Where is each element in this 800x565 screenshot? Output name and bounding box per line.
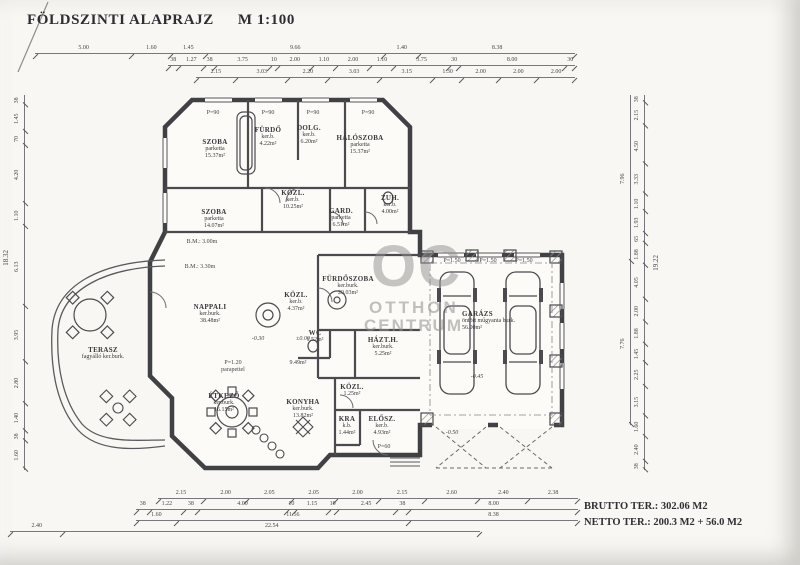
dimension-value: 2.15 bbox=[196, 68, 236, 77]
dimension-value: 38 bbox=[14, 431, 24, 441]
room-label-konyha: KONYHA ker.burk. 13.82m² bbox=[286, 398, 319, 420]
dimension-value: 3.33 bbox=[634, 164, 644, 194]
garage-door-opening bbox=[498, 421, 554, 429]
terrace-seating bbox=[88, 378, 147, 437]
note-parapet: P=1.20 parapettel bbox=[221, 360, 245, 374]
dimension-value: 5.00 bbox=[35, 44, 132, 53]
garage-door-opening bbox=[432, 421, 488, 429]
dimension-chain-bottom-2: 381.22384.00101.15102.45388.00 bbox=[136, 500, 578, 510]
dimension-value: 10 bbox=[287, 500, 295, 509]
dimension-value: 8.00 bbox=[459, 56, 565, 65]
note-p150: P=1.50 bbox=[515, 258, 532, 265]
watermark-line1: OTTHON bbox=[369, 299, 459, 316]
dimension-value: 1.45 bbox=[14, 105, 24, 132]
dimension-value: 1.88 bbox=[634, 323, 644, 345]
level-marker: -0.30 bbox=[252, 336, 265, 343]
dimension-value: 2.00 bbox=[537, 68, 575, 77]
dimension-value: 4.05 bbox=[634, 265, 644, 300]
dimension-value: 2.40 bbox=[478, 489, 528, 498]
note-p150: P=1.50 bbox=[443, 258, 460, 265]
dimension-chain-left: 381.45704.201.106.133.952.801.40381.60 bbox=[14, 95, 25, 470]
dimension-value: 1.45 bbox=[634, 344, 644, 363]
dimension-value: 3.75 bbox=[394, 56, 449, 65]
dimension-value: 2.05 bbox=[247, 489, 291, 498]
dimension-value: 8.38 bbox=[419, 44, 575, 53]
dimension-value: 38 bbox=[14, 95, 24, 105]
dimension-value: 1.10 bbox=[370, 56, 394, 65]
dimension-value: 30 bbox=[565, 56, 575, 65]
dimension-value: 4.20 bbox=[14, 146, 24, 204]
dimension-value: 9.66 bbox=[206, 44, 384, 53]
room-label-szoba-2: SZOBA parketta 14.07m² bbox=[201, 208, 226, 230]
watermark-logo: OC bbox=[371, 238, 462, 296]
dimension-value: 2.15 bbox=[158, 489, 204, 498]
room-label-kozl-3: KÖZL. 1.25m² bbox=[340, 383, 363, 398]
dimension-value: 1.27 bbox=[179, 56, 205, 65]
dimension-value: 2.15 bbox=[634, 103, 644, 126]
dimension-value: 1.60 bbox=[132, 44, 170, 53]
dimension-value: 2.38 bbox=[528, 489, 578, 498]
note-bm-300: B.M.: 3.00m bbox=[187, 239, 218, 246]
dimension-value: 2.20 bbox=[288, 68, 329, 77]
note-p150: P=1.50 bbox=[479, 258, 496, 265]
dimension-value: 2.40 bbox=[10, 522, 63, 531]
dimension-chain-top-2: 381.27383.75102.001.102.001.103.75308.00… bbox=[168, 56, 575, 66]
title-text: FÖLDSZINTI ALAPRAJZ bbox=[27, 12, 214, 28]
dimension-value: 1.30 bbox=[433, 68, 461, 77]
dimension-value: 2.00 bbox=[462, 68, 500, 77]
room-label-szoba-1: SZOBA parketta 15.37m² bbox=[202, 138, 227, 160]
dimension-value: 1.15 bbox=[295, 500, 328, 509]
dimension-chain-right: 382.154.503.331.101.93651.884.052.001.88… bbox=[634, 95, 645, 470]
dimension-value: 2.00 bbox=[336, 489, 379, 498]
dimension-value: 1.60 bbox=[634, 417, 644, 437]
room-label-nappali: NAPPALI ker.burk. 38.48m² bbox=[194, 303, 227, 325]
dimension-value: 10 bbox=[329, 500, 337, 509]
dimension-value: 1.22 bbox=[150, 500, 185, 509]
room-label-dolg: DOLG. ker.b. 6.20m² bbox=[297, 124, 321, 146]
room-label-etkezo: ÉTKEZŐ ker.burk. 16.15m² bbox=[208, 392, 239, 414]
area-summary: BRUTTO TER.: 302.06 M2 NETTO TER.: 200.3… bbox=[584, 499, 742, 532]
dimension-value: 2.40 bbox=[634, 437, 644, 462]
dimension-value: 3.03 bbox=[328, 68, 380, 77]
dimension-value: 22.54 bbox=[63, 522, 480, 531]
dimension-value: 1.10 bbox=[312, 56, 336, 65]
room-label-hazth: HÁZT.H. ker.burk. 5.25m² bbox=[368, 336, 398, 358]
room-label-kozl-1: KÖZL. ker.b. 10.25m² bbox=[281, 189, 304, 211]
dimension-value: 2.45 bbox=[337, 500, 396, 509]
room-label-gard: GARD. parketta 6.51m² bbox=[329, 207, 353, 229]
level-marker: ±0.00 bbox=[296, 336, 310, 343]
dimension-value: 38 bbox=[168, 56, 179, 65]
dimension-value: 1.40 bbox=[14, 405, 24, 431]
dimension-value: 2.80 bbox=[14, 362, 24, 404]
dimension-value: 7.96 bbox=[620, 95, 630, 262]
dimension-value: 3.75 bbox=[215, 56, 270, 65]
dimension-value: 2.00 bbox=[499, 68, 537, 77]
dimension-value: 65 bbox=[634, 234, 644, 244]
room-label-furdo: FÜRDŐ ker.b. 4.22m² bbox=[255, 126, 281, 148]
dimension-value: 10 bbox=[270, 56, 277, 65]
dimension-value: 3.15 bbox=[380, 68, 433, 77]
dimension-value: 2.00 bbox=[634, 300, 644, 322]
dimension-value: 1.88 bbox=[634, 244, 644, 266]
room-label-kozl-2: KÖZL. ker.b. 4.37m² bbox=[284, 291, 307, 313]
room-label-zuh: ZUH. ker.b. 4.00m² bbox=[381, 194, 399, 216]
dimension-value: 1.60 bbox=[136, 511, 177, 520]
dimension-chain-bottom-1: 2.152.002.052.052.002.152.602.402.38 bbox=[158, 489, 578, 499]
note-p90: P=90 bbox=[262, 110, 275, 117]
room-label-kamra: KRA k.b. 1.44m² bbox=[339, 415, 356, 437]
dimension-value: 3.03 bbox=[236, 68, 288, 77]
dimension-total-left: 18.32 bbox=[2, 250, 10, 266]
dimension-value: 38 bbox=[204, 56, 215, 65]
dimension-value: 8.00 bbox=[409, 500, 578, 509]
level-marker: -0.45 bbox=[471, 374, 484, 381]
room-label-hall-area: 9.49m² bbox=[290, 360, 307, 367]
dimension-value: 30 bbox=[449, 56, 459, 65]
dimension-value: 38 bbox=[396, 500, 410, 509]
dimension-value: 2.25 bbox=[634, 363, 644, 387]
dimension-chain-bottom-4: 2.4022.54 bbox=[10, 522, 480, 532]
level-marker: -0.50 bbox=[446, 430, 459, 437]
dimension-value: 11.56 bbox=[177, 511, 409, 520]
dimension-value: 70 bbox=[14, 132, 24, 146]
dimension-value: 4.00 bbox=[198, 500, 288, 509]
dimension-total-right: 19.22 bbox=[652, 255, 660, 271]
room-label-terasz: TERASZ fagyálló ker.burk. bbox=[82, 346, 125, 361]
dimension-value: 2.00 bbox=[204, 489, 247, 498]
dimension-value: 3.15 bbox=[634, 387, 644, 416]
dimension-chain-top-3: 2.153.032.203.033.151.302.002.002.00 bbox=[196, 68, 575, 78]
dimension-subtotals-right: 7.967.76 bbox=[620, 95, 631, 425]
dimension-value: 2.00 bbox=[278, 56, 312, 65]
drawing-title: FÖLDSZINTI ALAPRAJZM 1:100 bbox=[27, 12, 295, 29]
room-label-elosz: ELŐSZ. ker.b. 4.93m² bbox=[369, 415, 396, 437]
netto-area: NETTO TER.: 200.3 M2 + 56.0 M2 bbox=[584, 515, 742, 531]
dimension-value: 4.50 bbox=[634, 127, 644, 164]
note-p90: P=90 bbox=[362, 110, 375, 117]
note-p90: P=90 bbox=[207, 110, 220, 117]
dimension-chain-top-1: 5.001.601.459.661.408.38 bbox=[35, 44, 575, 54]
dimension-value: 1.93 bbox=[634, 212, 644, 234]
room-label-furdoszoba: FÜRDŐSZOBA ker.burk. 20.03m² bbox=[322, 275, 374, 297]
dimension-value: 2.05 bbox=[292, 489, 336, 498]
room-label-garazs: GARÁZS öntött műgyanta burk. 56.00m² bbox=[462, 310, 515, 332]
room-label-haloszoba: HÁLÓSZOBA parketta 15.37m² bbox=[336, 134, 383, 156]
dimension-value: 38 bbox=[184, 500, 198, 509]
note-p90: P=90 bbox=[307, 110, 320, 117]
entry-steps bbox=[390, 458, 420, 466]
dimension-value: 1.45 bbox=[171, 44, 207, 53]
dimension-value: 3.95 bbox=[14, 307, 24, 362]
dimension-value: 6.13 bbox=[14, 227, 24, 307]
dimension-value: 2.15 bbox=[379, 489, 425, 498]
dimension-value: 7.76 bbox=[620, 262, 630, 425]
dimension-value: 38 bbox=[634, 462, 644, 470]
dimension-value: 38 bbox=[136, 500, 150, 509]
dimension-value: 1.40 bbox=[384, 44, 419, 53]
brutto-area: BRUTTO TER.: 302.06 M2 bbox=[584, 499, 742, 515]
floor-plan-sheet: OC OTTHON CENTRUM FÖLDSZINTI ALAPRAJZM 1… bbox=[0, 0, 800, 565]
scale-text: M 1:100 bbox=[238, 12, 295, 28]
dimension-value: 1.60 bbox=[14, 441, 24, 470]
note-bm-330: B.M.: 3.30m bbox=[185, 264, 216, 271]
note-p60: P=60 bbox=[378, 444, 391, 451]
dimension-value: 2.60 bbox=[425, 489, 478, 498]
dimension-value: 8.38 bbox=[409, 511, 578, 520]
dimension-chain-bottom-3: 1.6011.568.38 bbox=[136, 511, 578, 521]
watermark-line2: CENTRUM bbox=[364, 317, 463, 334]
dimension-value: 1.10 bbox=[634, 195, 644, 212]
dimension-value: 1.10 bbox=[14, 204, 24, 227]
dimension-value: 2.00 bbox=[336, 56, 370, 65]
